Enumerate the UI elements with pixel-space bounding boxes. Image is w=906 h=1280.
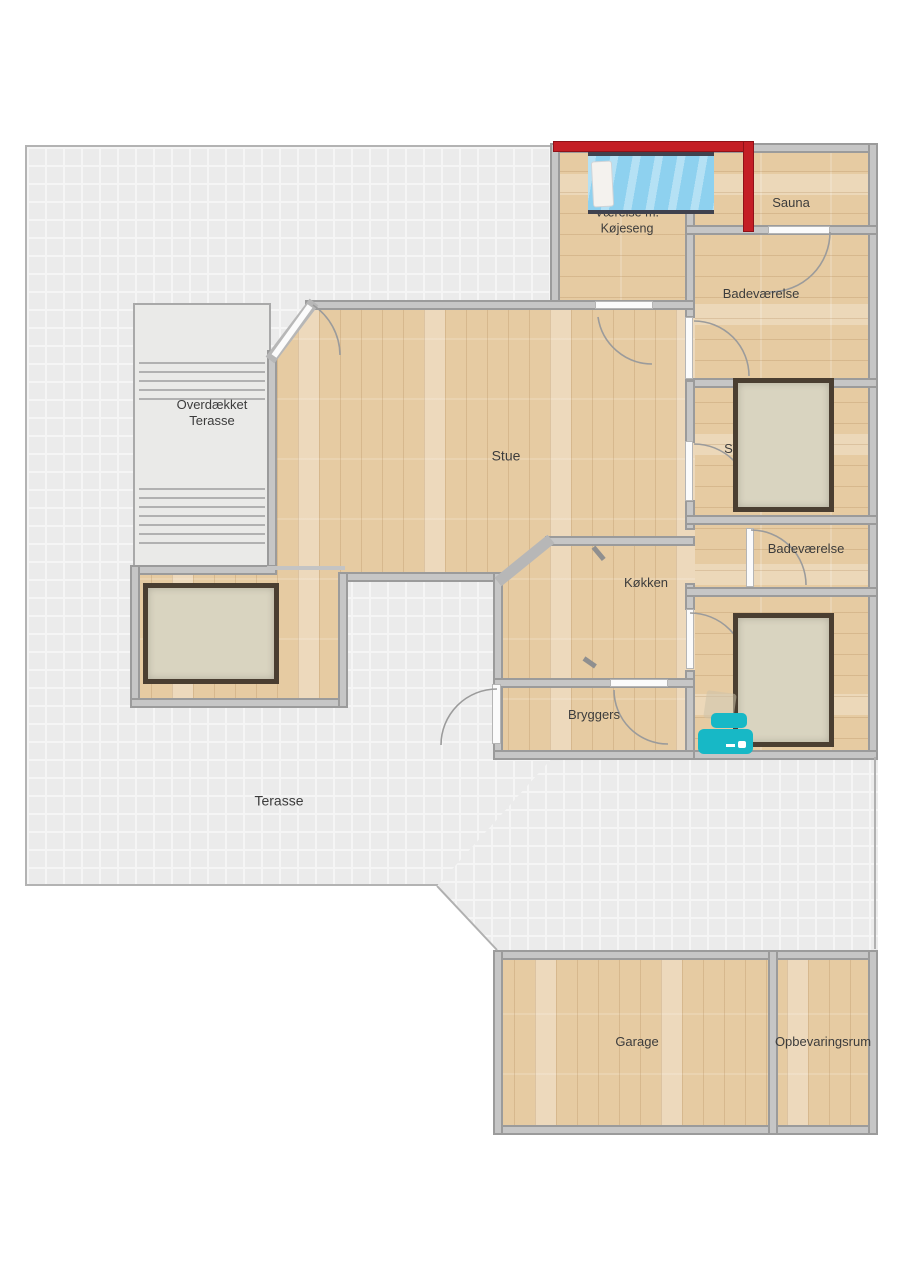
teal-furniture-large [698, 729, 753, 754]
bunk-bed [588, 152, 714, 214]
door-arc [614, 690, 668, 744]
door-arc [313, 305, 340, 355]
room-label-koekken: Køkken [624, 575, 668, 591]
room-label-garage: Garage [615, 1034, 658, 1050]
room-label-badevaerelse-2: Badeværelse [768, 541, 845, 557]
door-leaf-diagonal [274, 306, 310, 356]
bed [733, 613, 834, 747]
room-label-sauna: Sauna [772, 195, 810, 211]
garage-labels-clip: Garage Opbevaringsrum [493, 950, 878, 1135]
bed [733, 378, 834, 512]
door-arc [751, 530, 806, 585]
teal-furniture-detail [738, 741, 746, 748]
door-arc [598, 317, 652, 364]
chamfer-wall [498, 539, 551, 582]
teal-furniture-small [711, 713, 747, 728]
opening-tick [592, 546, 606, 561]
floor-plan: Værelse m. Køjeseng Sauna Badeværelse So… [0, 0, 906, 1280]
pillow [591, 160, 614, 207]
bed [143, 583, 279, 684]
door-arc [770, 232, 830, 292]
terrace-diagonal-edge [437, 886, 497, 950]
room-label-opbevaringsrum: Opbevaringsrum [775, 1034, 871, 1050]
room-label-bryggers: Bryggers [568, 707, 620, 723]
room-label-stue: Stue [492, 447, 521, 465]
room-label-terasse: Terasse [254, 792, 303, 810]
room-label-overdaekket-terasse: Overdækket Terasse [177, 397, 248, 430]
opening-tick [583, 656, 597, 668]
door-arc [441, 689, 497, 745]
door-arc [694, 321, 749, 376]
teal-furniture-detail [726, 744, 735, 747]
room-label-badevaerelse-1: Badeværelse [723, 286, 800, 302]
